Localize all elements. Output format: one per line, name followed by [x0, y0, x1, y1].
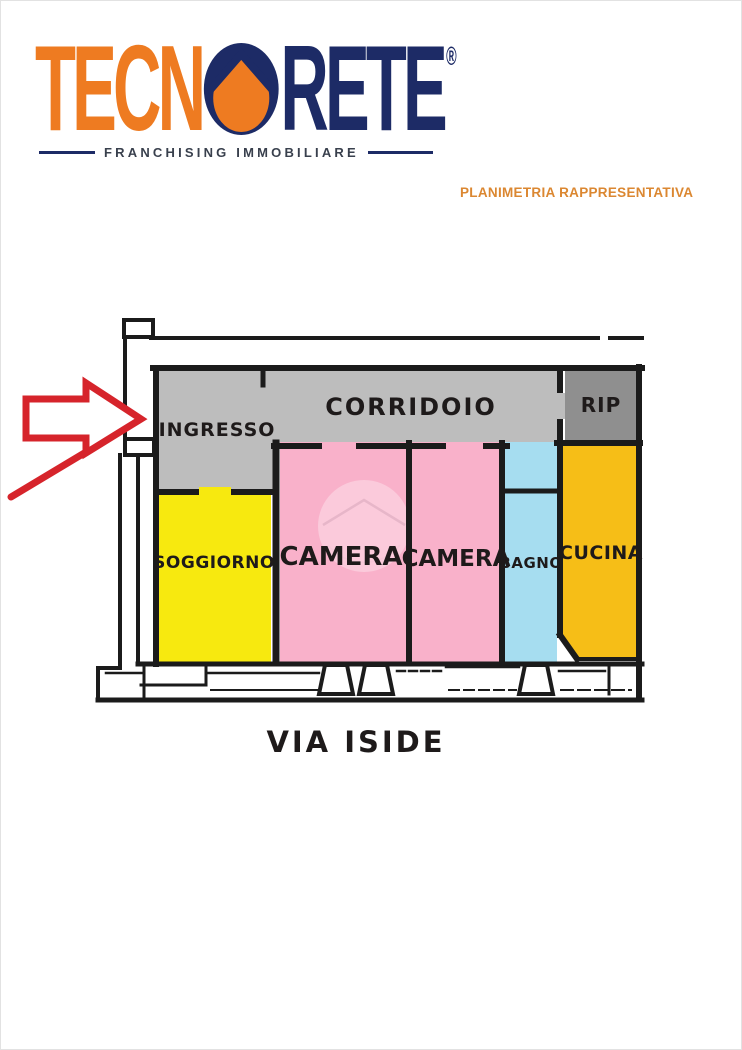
label-cucina: CUCINA: [559, 542, 643, 564]
flyer-page: TECN RETE ® FRANCHISING IMMOBILIARE PLAN…: [0, 0, 742, 1050]
soggiorno-door-gap: [199, 487, 231, 497]
street-label: VIA ISIDE: [266, 725, 445, 759]
page-title: PLANIMETRIA RAPPRESENTATIVA: [460, 185, 693, 200]
window-band: [106, 664, 631, 699]
label-corridoio: CORRIDOIO: [325, 393, 497, 421]
logo-text-tecn: TECN: [35, 40, 202, 138]
room-bagno-shape: [505, 442, 557, 663]
label-camera2: CAMERA: [402, 546, 511, 572]
rip-door-gap: [555, 393, 565, 419]
logo-house-icon: [203, 42, 279, 136]
label-bagno: BAGNO: [499, 554, 562, 572]
floor-plan: INGRESSO CORRIDOIO RIP SOGGIORNO CAMERA …: [1, 301, 742, 761]
label-ingresso: INGRESSO: [159, 419, 276, 441]
label-rip: RIP: [581, 393, 622, 417]
label-camera1: CAMERA: [280, 542, 403, 572]
header: TECN RETE ® FRANCHISING IMMOBILIARE: [35, 39, 455, 160]
label-soggiorno: SOGGIORNO: [153, 553, 275, 573]
registered-mark: ®: [446, 41, 457, 72]
room-soggiorno-shape: [158, 495, 271, 663]
logo-text-rete: RETE: [280, 40, 444, 138]
tecnorete-logo: TECN RETE ®: [35, 39, 266, 139]
